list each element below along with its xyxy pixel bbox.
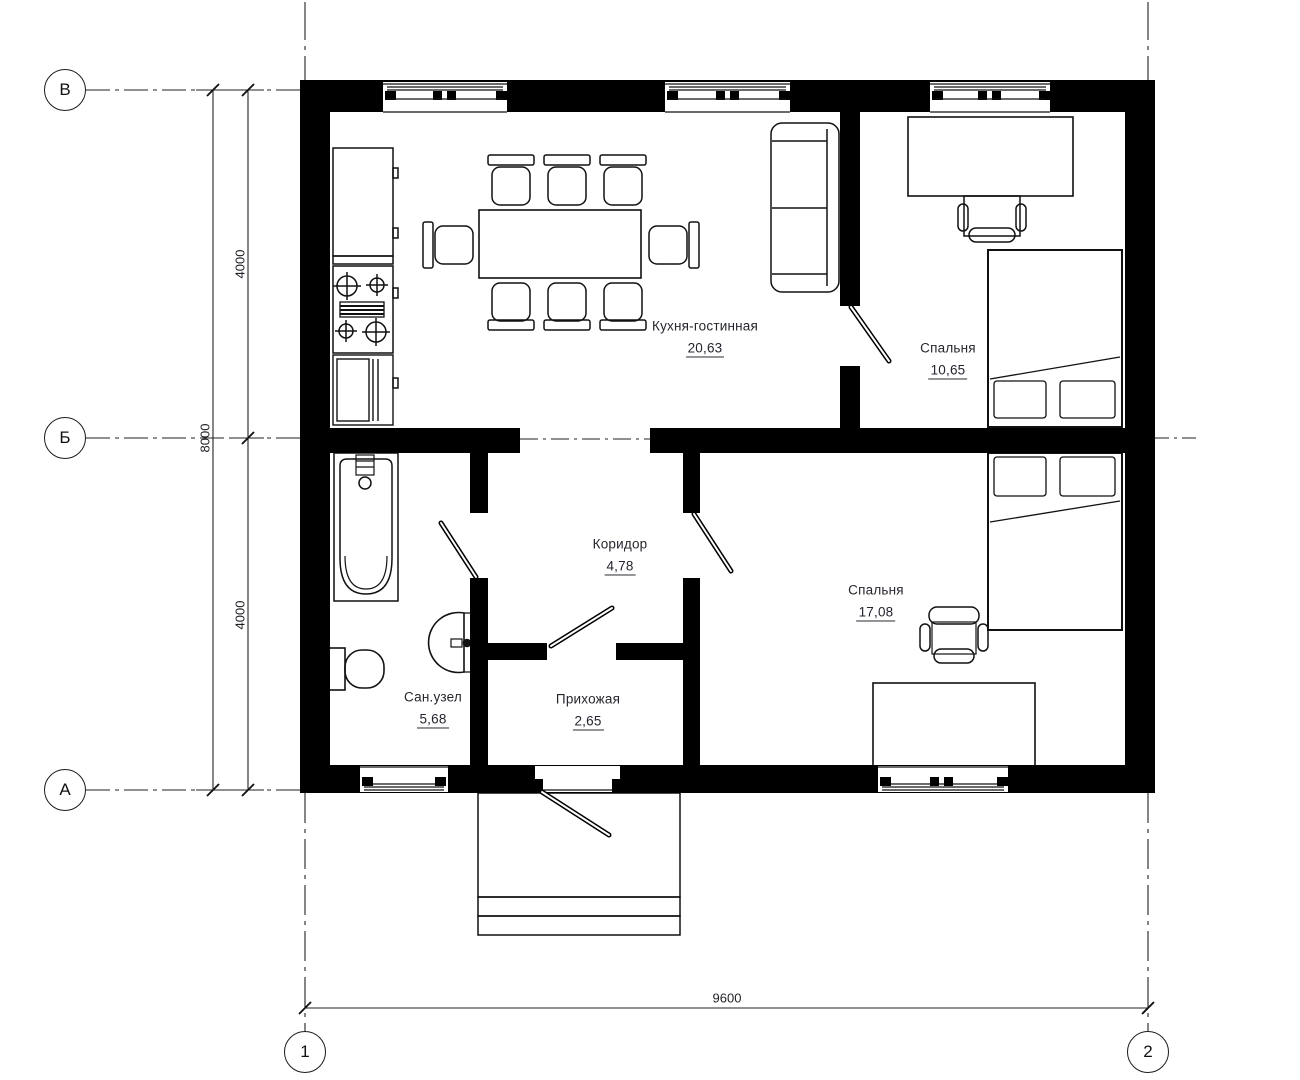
axis-bubble-a: А (44, 769, 86, 811)
door-hallway (551, 608, 612, 646)
room-area: 10,65 (929, 362, 968, 380)
wall-corridor-left-upper (470, 453, 488, 513)
axis-lines (86, 2, 1196, 1031)
room-area: 4,78 (604, 558, 635, 576)
room-area: 2,65 (572, 713, 603, 731)
window-top-2 (665, 82, 790, 113)
dim-lower-span: 4000 (233, 601, 248, 630)
room-name: Спальня (848, 582, 904, 598)
room-area: 17,08 (857, 604, 896, 622)
kitchen-counter (333, 148, 398, 388)
wall-partition-bedroom1-upper (840, 112, 860, 306)
room-label-bathroom: Сан.узел 5,68 (404, 689, 462, 728)
wall-hallway-top-left (488, 643, 547, 660)
axis-bubble-b: Б (44, 417, 86, 459)
dim-total-height: 8000 (198, 424, 213, 453)
bedroom1-chair (958, 196, 1026, 242)
window-bottom-2 (878, 766, 1008, 792)
door-bathroom (441, 523, 476, 577)
wall-left (300, 80, 330, 793)
dim-upper-span: 4000 (233, 250, 248, 279)
window-top-3 (930, 82, 1050, 113)
sofa (771, 123, 839, 292)
entrance-door-opening (535, 766, 620, 793)
room-name: Спальня (920, 340, 976, 356)
room-label-hallway: Прихожая 2,65 (556, 691, 620, 730)
bathtub-symbol (334, 453, 398, 601)
room-label-corridor: Коридор 4,78 (593, 536, 648, 575)
wall-mid-left (330, 428, 520, 453)
stove-symbol (333, 266, 393, 353)
axis-bubble-2: 2 (1127, 1031, 1169, 1073)
bedroom1-desk (908, 117, 1073, 196)
wall-hallway-top-right (616, 643, 683, 660)
walls (300, 80, 1155, 793)
toilet-symbol (329, 648, 384, 690)
wall-mid-right (650, 428, 1125, 453)
axis-bubble-1: 1 (284, 1031, 326, 1073)
wall-partition-bedroom1-lower (840, 366, 860, 428)
room-name: Кухня-гостинная (652, 318, 758, 334)
room-name: Сан.узел (404, 689, 462, 705)
wall-corridor-right-lower (683, 578, 700, 765)
door-bedroom1 (851, 307, 889, 361)
room-label-bedroom2: Спальня 17,08 (848, 582, 904, 621)
room-area: 5,68 (417, 711, 448, 729)
kitchen-sink-cabinet (333, 355, 393, 425)
floorplan-drawing (0, 0, 1300, 1080)
room-name: Коридор (593, 536, 648, 552)
room-label-kitchen-living: Кухня-гостинная 20,63 (652, 318, 758, 357)
bedroom2-armchair (920, 607, 988, 663)
bedroom1-bed (988, 250, 1122, 427)
wall-right (1125, 80, 1155, 793)
axis-bubble-v: В (44, 69, 86, 111)
room-label-bedroom1: Спальня 10,65 (920, 340, 976, 379)
window-bottom-1 (360, 766, 448, 792)
wall-corridor-left-lower (470, 578, 488, 765)
bedroom2-desk (873, 683, 1035, 766)
door-entrance (542, 792, 609, 835)
window-top-1 (383, 82, 507, 113)
wall-corridor-right-upper (683, 453, 700, 513)
room-area: 20,63 (686, 340, 725, 358)
dim-total-width: 9600 (713, 991, 742, 1006)
room-name: Прихожая (556, 691, 620, 707)
door-bedroom2 (694, 514, 731, 571)
dining-chairs (423, 155, 699, 330)
bedroom2-bed (988, 453, 1122, 630)
floorplan-canvas: Кухня-гостинная 20,63 Спальня 10,65 Кори… (0, 0, 1300, 1080)
dining-table (479, 210, 641, 278)
door-leaves (441, 307, 889, 835)
